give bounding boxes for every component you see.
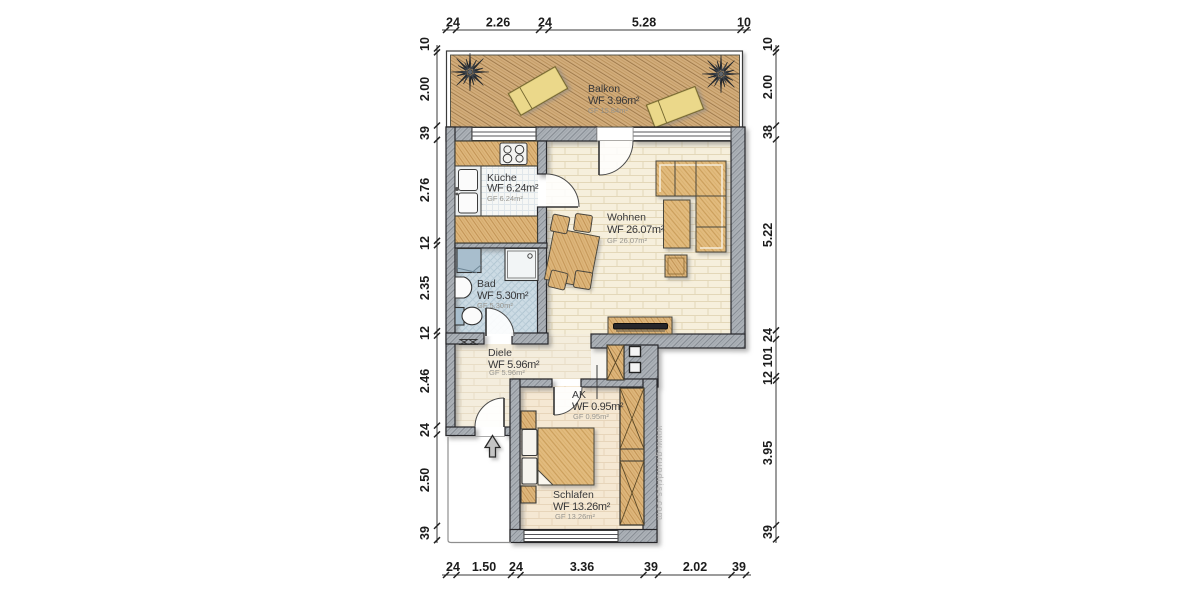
svg-text:5.28: 5.28 xyxy=(632,16,656,30)
svg-text:39: 39 xyxy=(418,526,432,540)
svg-text:GF 6.24m²: GF 6.24m² xyxy=(487,194,523,203)
svg-text:12: 12 xyxy=(418,236,432,250)
svg-text:10: 10 xyxy=(761,37,775,51)
svg-text:24: 24 xyxy=(509,560,523,574)
svg-text:39: 39 xyxy=(418,126,432,140)
svg-text:1.50: 1.50 xyxy=(472,560,496,574)
svg-text:101: 101 xyxy=(761,347,775,368)
svg-text:2.76: 2.76 xyxy=(418,178,432,202)
svg-text:Bad: Bad xyxy=(477,278,496,290)
svg-text:Wohnen: Wohnen xyxy=(607,212,646,224)
svg-text:WF 6.24m²: WF 6.24m² xyxy=(487,183,539,195)
svg-text:Diele: Diele xyxy=(488,347,512,359)
svg-text:12: 12 xyxy=(761,371,775,385)
svg-text:2.35: 2.35 xyxy=(418,276,432,300)
svg-text:5.22: 5.22 xyxy=(761,223,775,247)
svg-text:Schlafen: Schlafen xyxy=(553,489,594,501)
svg-text:2.02: 2.02 xyxy=(683,560,707,574)
svg-text:GF 5.96m²: GF 5.96m² xyxy=(489,368,525,377)
svg-text:24: 24 xyxy=(446,560,460,574)
svg-text:2.50: 2.50 xyxy=(418,468,432,492)
svg-text:24: 24 xyxy=(418,423,432,437)
svg-text:39: 39 xyxy=(732,560,746,574)
svg-text:GF 26.07m²: GF 26.07m² xyxy=(607,236,648,245)
svg-text:AK: AK xyxy=(572,389,586,401)
svg-text:24: 24 xyxy=(446,16,460,30)
svg-text:3.36: 3.36 xyxy=(570,560,594,574)
svg-text:GF 15.84m²: GF 15.84m² xyxy=(588,106,629,115)
svg-text:GF 13.26m²: GF 13.26m² xyxy=(555,512,596,521)
svg-text:2.00: 2.00 xyxy=(418,77,432,101)
svg-text:38: 38 xyxy=(761,125,775,139)
svg-text:2.26: 2.26 xyxy=(486,16,510,30)
svg-text:10: 10 xyxy=(737,16,751,30)
svg-text:www.grundriss.com: www.grundriss.com xyxy=(655,425,665,521)
svg-text:12: 12 xyxy=(418,326,432,340)
svg-text:3.95: 3.95 xyxy=(761,441,775,465)
svg-text:2.00: 2.00 xyxy=(761,75,775,99)
svg-text:WF 26.07m²: WF 26.07m² xyxy=(607,224,665,236)
svg-text:24: 24 xyxy=(538,16,552,30)
svg-text:2.46: 2.46 xyxy=(418,369,432,393)
svg-text:39: 39 xyxy=(761,525,775,539)
svg-text:10: 10 xyxy=(418,37,432,51)
svg-text:Balkon: Balkon xyxy=(588,83,620,95)
svg-text:GF 0.95m²: GF 0.95m² xyxy=(573,412,609,421)
svg-text:39: 39 xyxy=(644,560,658,574)
svg-text:GF 5.30m²: GF 5.30m² xyxy=(477,301,513,310)
svg-text:24: 24 xyxy=(761,328,775,342)
